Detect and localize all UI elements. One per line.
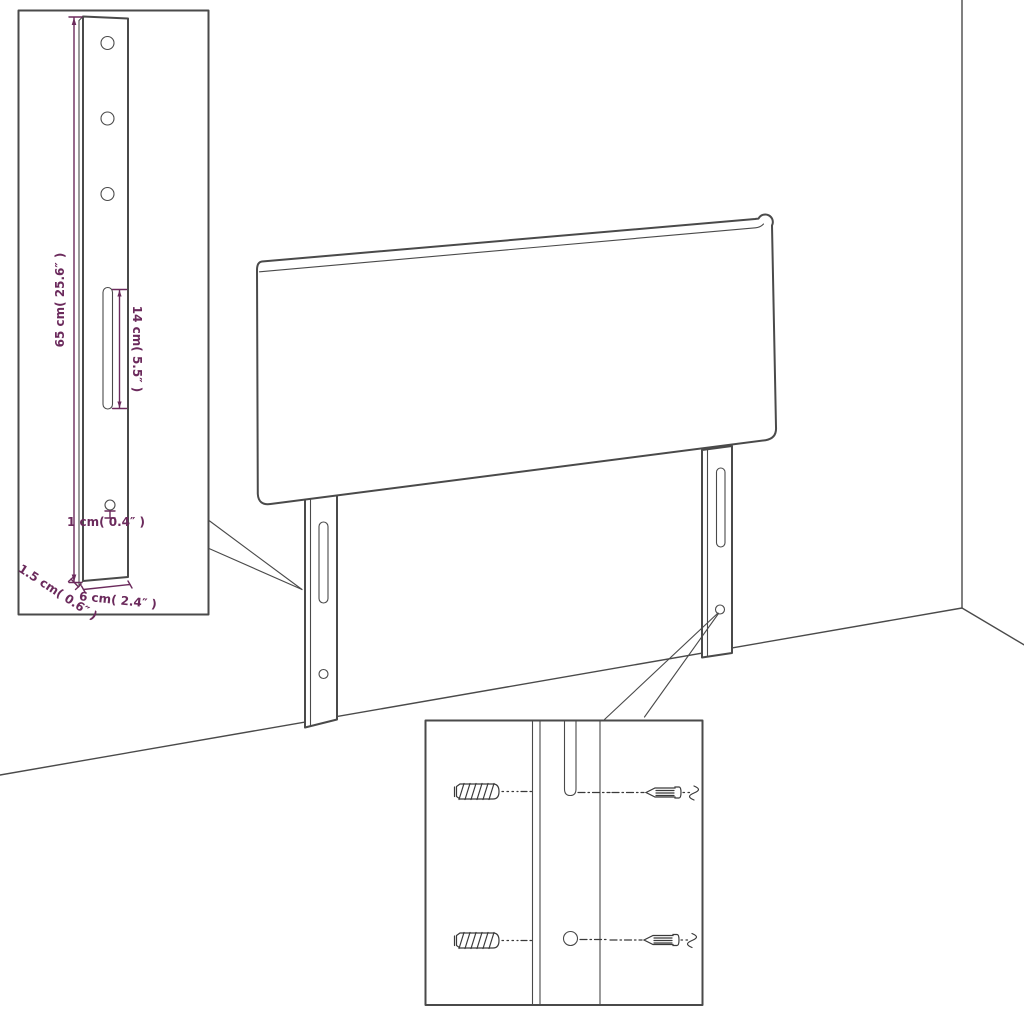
diagram-canvas: 65 cm( 25.6″ ) 14 cm( 5.5″ ) 1 cm( 0.4″ … bbox=[0, 0, 1024, 1024]
detail-pointer-lines bbox=[209, 521, 719, 720]
mounting-detail-inset bbox=[426, 721, 703, 1006]
hole-diameter-label: 1 cm( 0.4″ ) bbox=[67, 515, 145, 529]
left-leg bbox=[305, 495, 337, 728]
headboard-panel bbox=[257, 214, 776, 504]
right-leg bbox=[702, 446, 732, 658]
mount-inset-pointer-left bbox=[605, 613, 719, 720]
headboard-dimension-diagram: 65 cm( 25.6″ ) 14 cm( 5.5″ ) 1 cm( 0.4″ … bbox=[0, 0, 1024, 1024]
inset-leg-front-face bbox=[83, 17, 128, 582]
leg-dimension-inset: 65 cm( 25.6″ ) 14 cm( 5.5″ ) 1 cm( 0.4″ … bbox=[16, 11, 209, 623]
left-leg-body bbox=[305, 495, 337, 728]
floor-line-right bbox=[962, 608, 1024, 646]
slot-length-label: 14 cm( 5.5″ ) bbox=[130, 306, 144, 392]
panel-outline bbox=[257, 214, 776, 504]
leg-height-label: 65 cm( 25.6″ ) bbox=[53, 253, 67, 348]
mount-inset-pointer-right bbox=[645, 614, 719, 718]
